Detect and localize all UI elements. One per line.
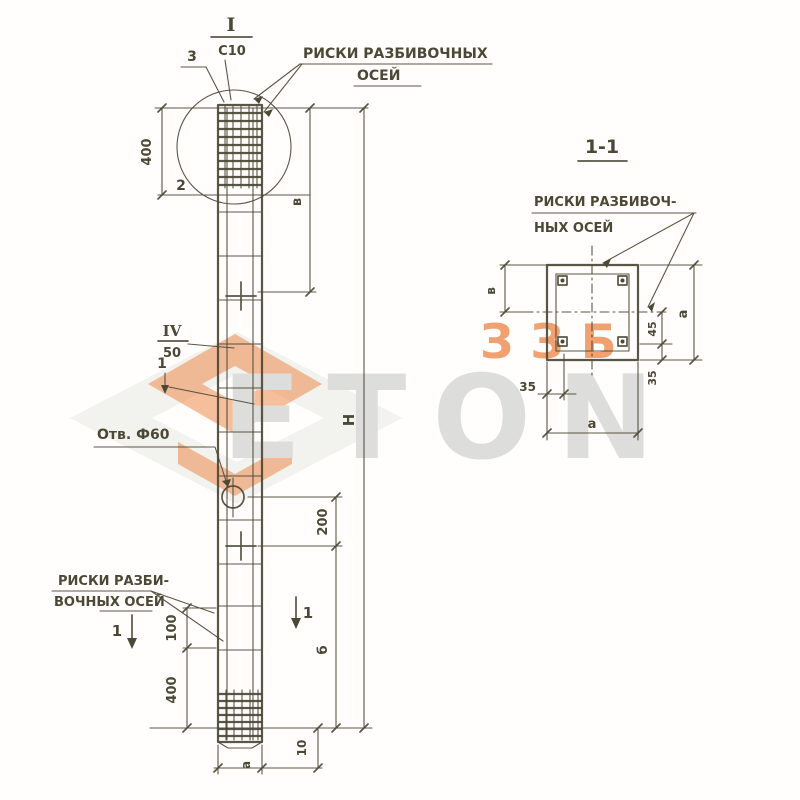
section-dim-45-label: 45 [646, 321, 659, 336]
watermark: ЗЗБ ETON [70, 315, 680, 504]
section-dim-v: в [484, 261, 509, 316]
dim-H: Н [340, 104, 368, 732]
section-title: 1-1 [578, 136, 627, 161]
section-dim-35-bottom-label: 35 [519, 380, 536, 394]
section-title-text: 1-1 [585, 136, 619, 158]
dim-v-label: в [290, 198, 305, 206]
callout-2: 2 [176, 178, 186, 194]
dim-400-top-label: 400 [140, 138, 155, 165]
concrete-column-drawing: ЗЗБ ETON [0, 0, 800, 800]
section-cut-left-label: 1 [112, 622, 122, 640]
dim-400-top: 400 [140, 104, 166, 199]
hole-label-text: Отв. Ф60 [97, 427, 170, 443]
section-cut-left: 1 [112, 615, 137, 649]
axis-label-top-line2: ОСЕЙ [357, 67, 400, 84]
axis-cross-lower [226, 532, 256, 560]
dim-10-label: 10 [295, 740, 309, 757]
dim-400-bottom-label: 400 [165, 676, 180, 703]
marker-mid-roman: IV [163, 322, 182, 340]
dim-100-400: 100 400 [165, 604, 191, 732]
cut-arrow-icon [127, 638, 137, 649]
watermark-gray-text: ETON [222, 351, 680, 486]
axis-cross-upper [226, 282, 256, 310]
leader-arrow [648, 302, 655, 312]
drawing-sheet: ЗЗБ ETON [0, 0, 800, 800]
dim-100-label: 100 [165, 614, 180, 641]
cut-arrow-icon [291, 618, 301, 629]
section-dim-v-label: в [484, 287, 498, 295]
dim-200-label: 200 [316, 508, 331, 535]
leader-arrow [254, 96, 263, 104]
axis-label-bottom: РИСКИ РАЗБИ- ВОЧНЫХ ОСЕЙ [52, 574, 223, 641]
dim-b-label: б [316, 645, 331, 654]
callout-1-label: 1 [157, 356, 167, 372]
axis-label-top-line1: РИСКИ РАЗБИВОЧНЫХ [303, 46, 488, 62]
section-cut-right-label: 1 [303, 604, 313, 622]
dim-H-label: Н [340, 414, 358, 427]
axis-label-bottom-line2: ВОЧНЫХ ОСЕЙ [54, 594, 165, 610]
marker-top: I С10 [211, 14, 252, 100]
axis-label-bottom-line1: РИСКИ РАЗБИ- [58, 574, 169, 589]
top-mesh [219, 106, 261, 188]
section-dim-a-bottom-label: а [588, 417, 597, 432]
section-cut-right: 1 [291, 597, 313, 629]
dim-a-label: а [239, 761, 253, 769]
marker-top-roman: I [227, 14, 236, 36]
dim-200-b: 200 б [316, 493, 340, 732]
section-axis-label-line2: НЫХ ОСЕЙ [534, 220, 613, 236]
bottom-mesh [219, 690, 261, 740]
section-axis-label-line1: РИСКИ РАЗБИВОЧ- [534, 195, 676, 210]
callout-3-label: 3 [187, 49, 197, 65]
detail-circle [177, 90, 291, 204]
section-axis-label: РИСКИ РАЗБИВОЧ- НЫХ ОСЕЙ [532, 195, 696, 312]
dim-v: в [290, 104, 314, 296]
callout-2-label: 2 [176, 178, 186, 194]
section-dim-a-right: а [676, 261, 698, 364]
axis-label-top: РИСКИ РАЗБИВОЧНЫХ ОСЕЙ [254, 46, 492, 117]
marker-top-value: С10 [218, 44, 246, 59]
section-dim-35-right-label: 35 [646, 370, 659, 385]
section-dim-a-right-label: а [676, 310, 691, 319]
